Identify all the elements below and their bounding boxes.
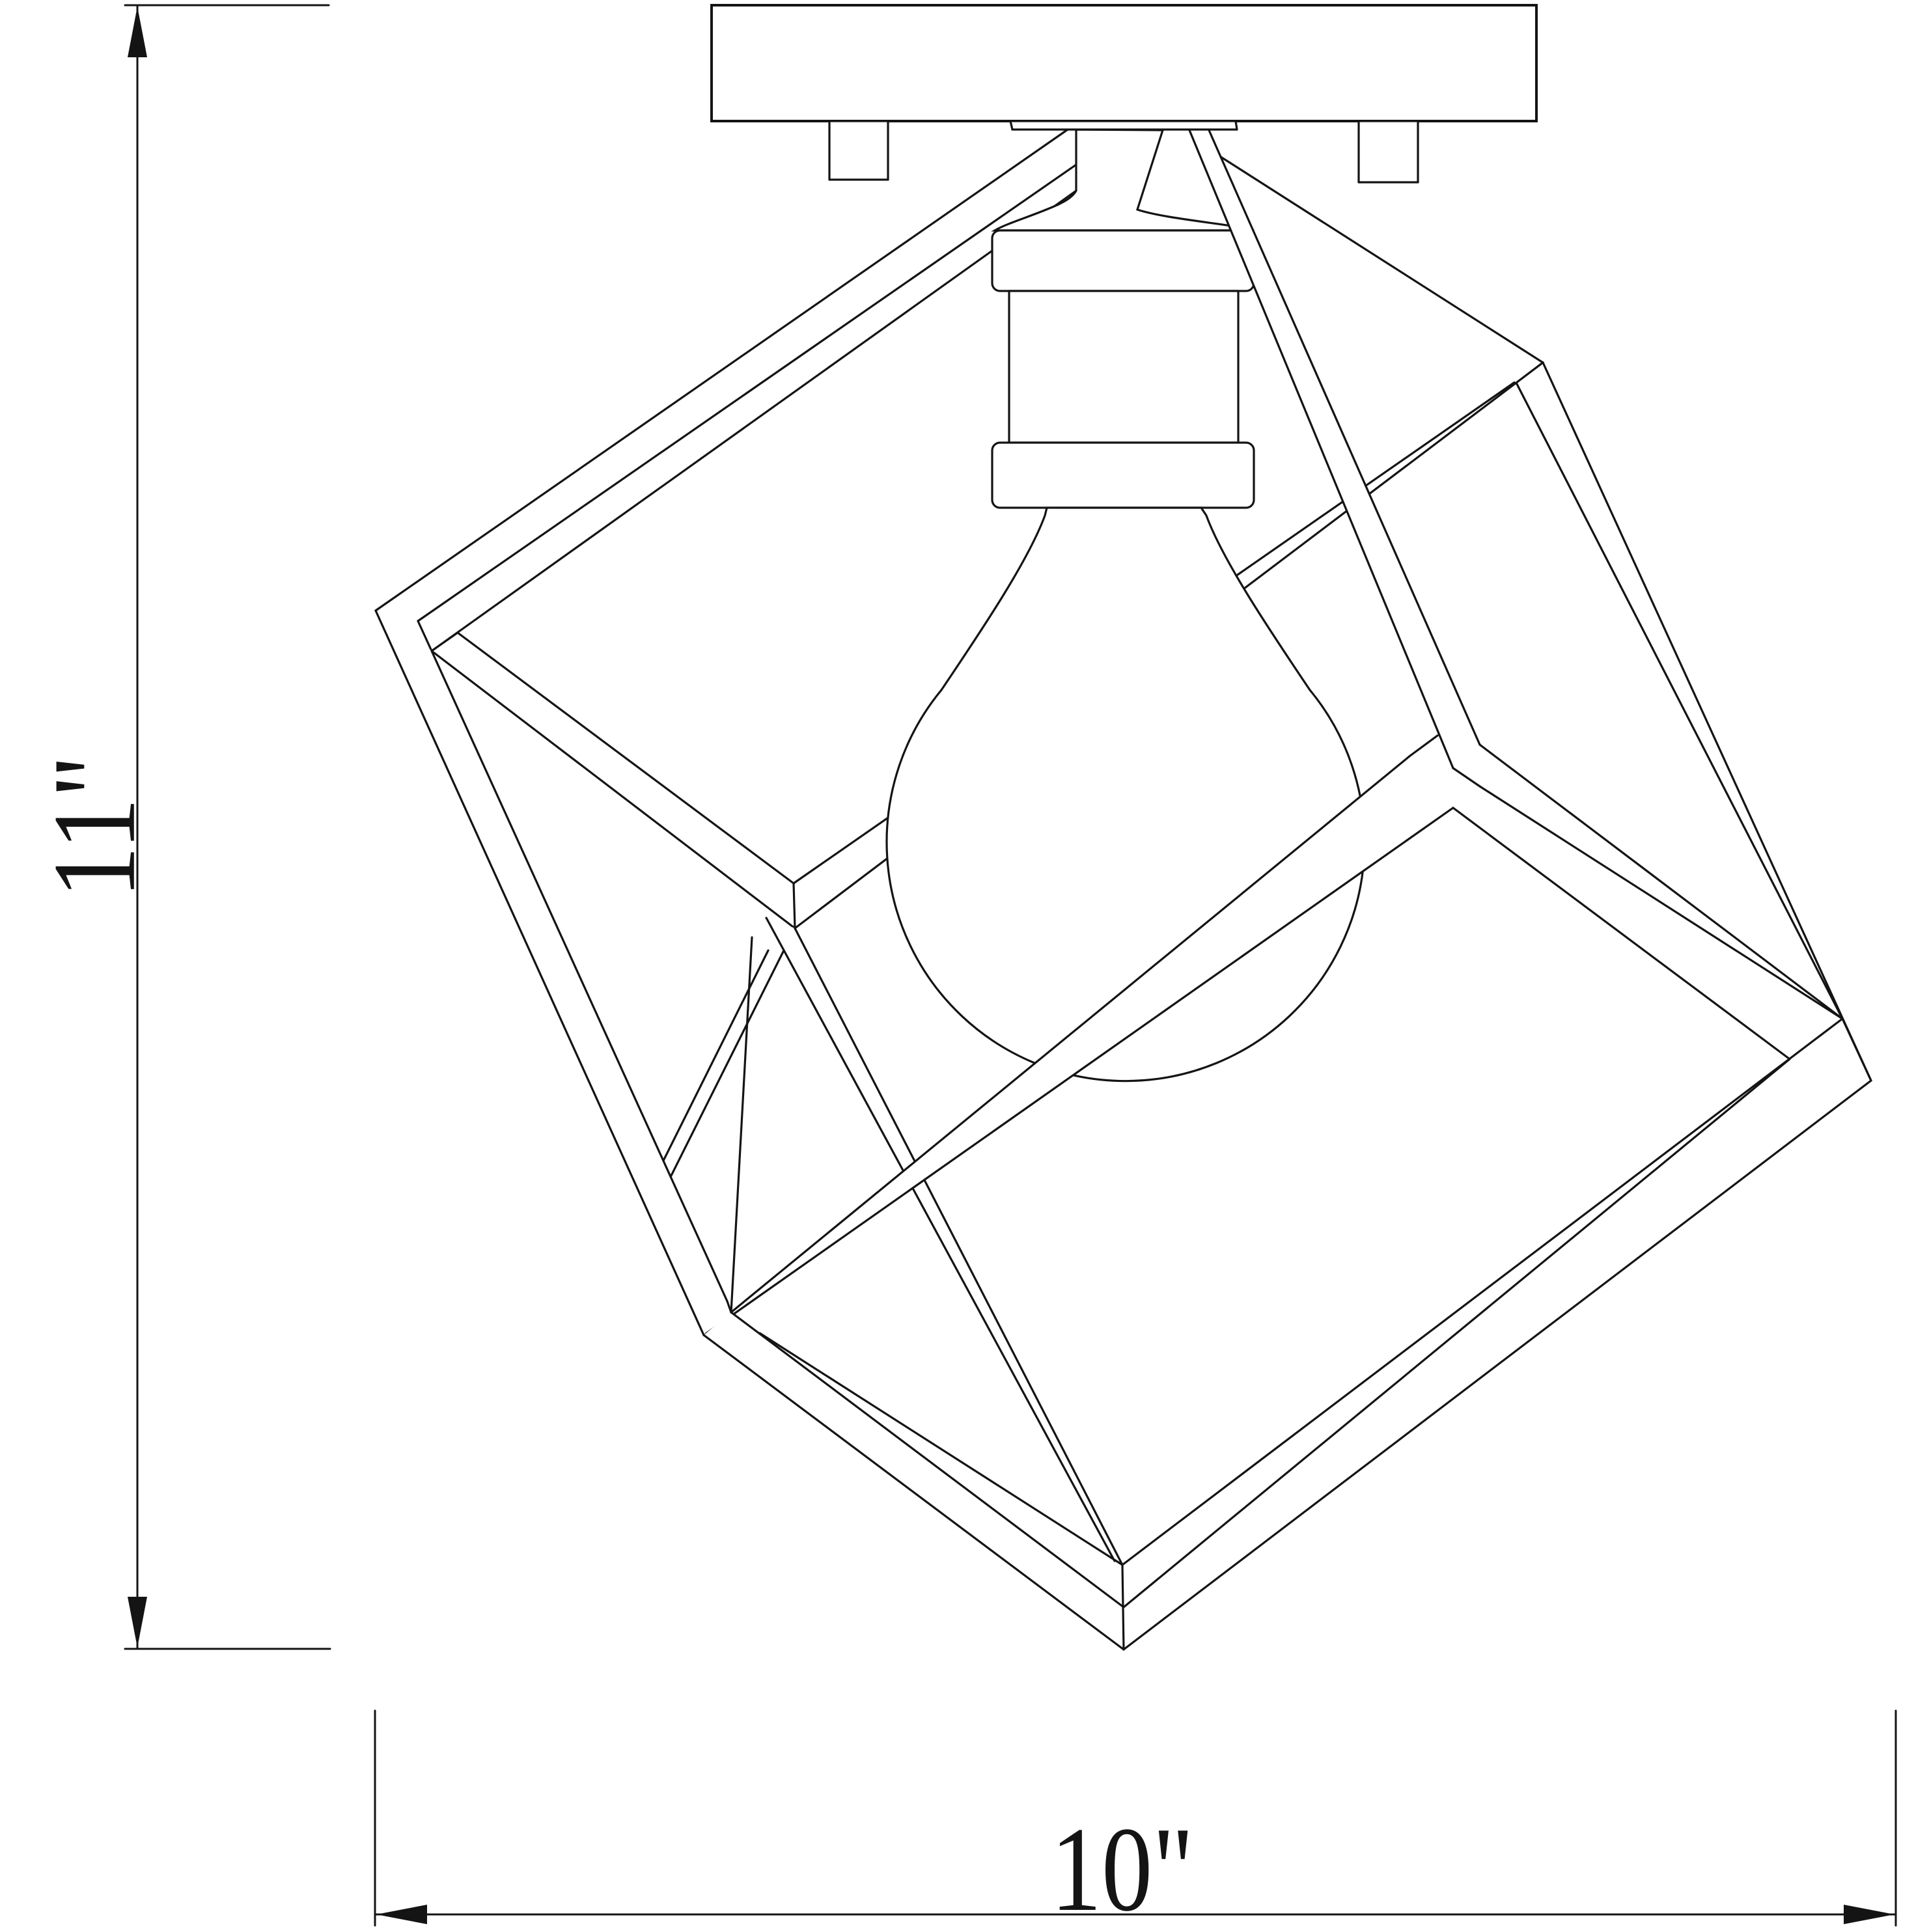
svg-text:11": 11": [29, 755, 160, 898]
svg-text:10": 10": [1051, 1802, 1194, 1929]
